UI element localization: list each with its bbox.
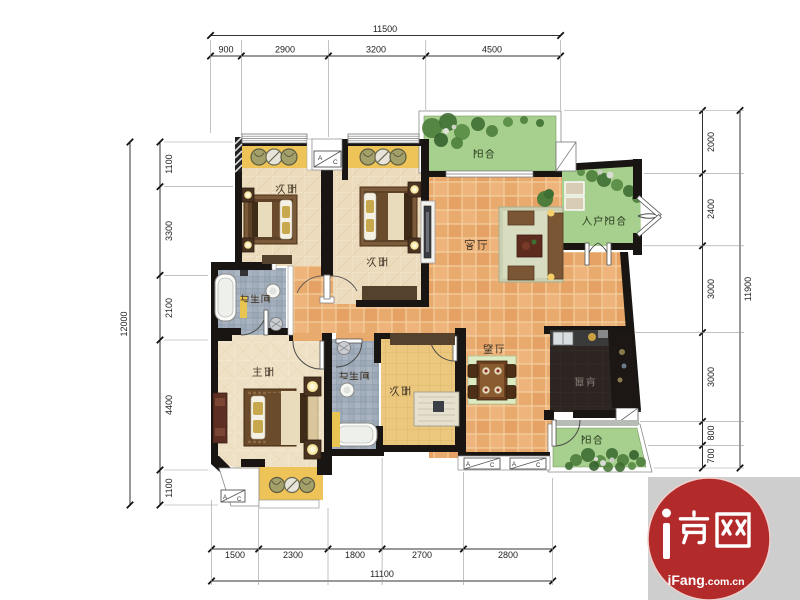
svg-text:11900: 11900 [743, 277, 753, 301]
svg-text:C: C [237, 497, 242, 503]
svg-text:A: A [318, 155, 323, 162]
svg-text:900: 900 [218, 45, 233, 55]
svg-text:800: 800 [706, 425, 716, 440]
svg-text:2900: 2900 [275, 45, 295, 55]
svg-text:1500: 1500 [225, 550, 245, 560]
svg-text:2400: 2400 [706, 199, 716, 219]
svg-text:1100: 1100 [164, 154, 174, 173]
svg-text:A: A [223, 495, 227, 501]
svg-text:2300: 2300 [283, 550, 303, 560]
svg-text:11500: 11500 [373, 24, 397, 34]
svg-text:A: A [512, 462, 516, 468]
svg-text:C: C [490, 463, 495, 469]
svg-text:2800: 2800 [498, 550, 518, 560]
svg-text:3200: 3200 [366, 45, 386, 55]
svg-text:1100: 1100 [164, 478, 174, 497]
svg-text:12000: 12000 [119, 311, 129, 336]
svg-text:C: C [333, 159, 338, 166]
svg-text:2000: 2000 [706, 132, 716, 152]
svg-text:1800: 1800 [345, 550, 365, 560]
svg-text:2700: 2700 [412, 550, 432, 560]
svg-text:2100: 2100 [164, 298, 174, 318]
svg-text:3000: 3000 [706, 279, 716, 299]
svg-text:4400: 4400 [164, 395, 174, 415]
svg-text:700: 700 [706, 448, 716, 463]
svg-text:3000: 3000 [706, 367, 716, 387]
svg-text:4500: 4500 [482, 45, 502, 55]
svg-text:3300: 3300 [164, 221, 174, 241]
svg-text:A: A [466, 462, 470, 468]
svg-text:C: C [536, 463, 541, 469]
